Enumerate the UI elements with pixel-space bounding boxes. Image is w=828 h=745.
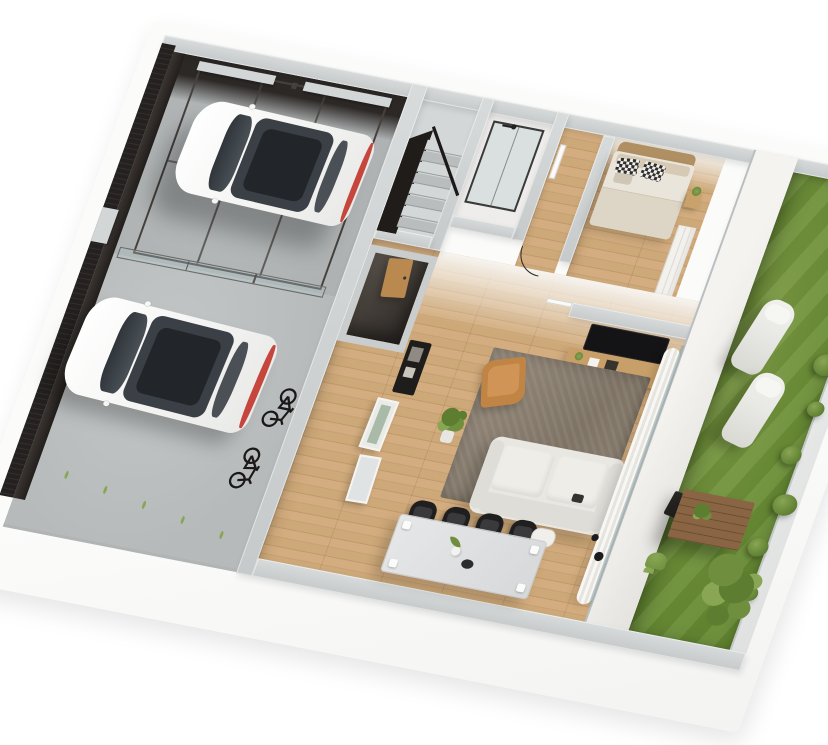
table-leg bbox=[401, 520, 412, 530]
sunroof bbox=[134, 326, 223, 407]
table-leg bbox=[515, 583, 526, 593]
grass-tuft bbox=[178, 516, 187, 524]
side-mirror bbox=[144, 301, 152, 307]
grass-tuft bbox=[139, 501, 148, 509]
tan-armchair bbox=[481, 356, 527, 408]
grass-tuft bbox=[217, 531, 226, 539]
table-leg bbox=[388, 558, 399, 568]
table-sprig bbox=[450, 535, 460, 549]
table-vase bbox=[450, 546, 462, 557]
table-leg bbox=[529, 545, 540, 555]
accent-pillow bbox=[612, 172, 633, 185]
side-mirror bbox=[249, 104, 257, 110]
hedge-bush bbox=[805, 400, 827, 418]
floor-plan bbox=[0, 35, 828, 681]
hedge-bush bbox=[738, 584, 760, 602]
sunroof bbox=[241, 128, 324, 203]
lift-post bbox=[291, 82, 298, 88]
floor-plan-stage bbox=[0, 0, 828, 745]
table-bowl bbox=[460, 558, 475, 569]
grass-tuft bbox=[101, 486, 110, 494]
